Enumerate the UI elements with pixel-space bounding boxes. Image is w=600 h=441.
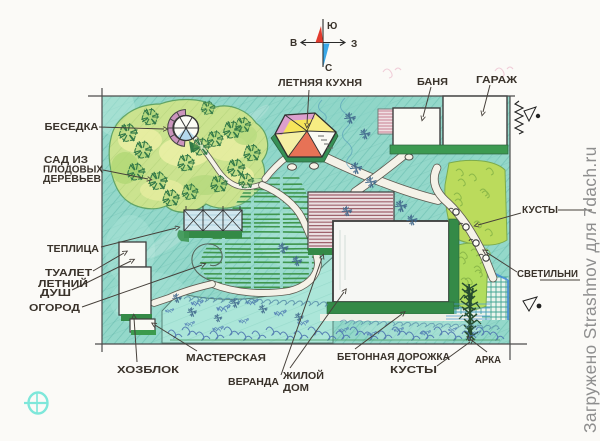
svg-text:В: В — [290, 38, 297, 49]
svg-text:ХОЗБЛОК: ХОЗБЛОК — [117, 365, 180, 376]
svg-text:ДУШ: ДУШ — [40, 288, 71, 299]
svg-text:ДЕРЕВЬЕВ: ДЕРЕВЬЕВ — [43, 174, 101, 185]
svg-text:ОГОРОД: ОГОРОД — [29, 303, 80, 314]
svg-text:С: С — [325, 63, 332, 74]
svg-text:Загружено Strashnov для 7dach.: Загружено Strashnov для 7dach.ru — [580, 146, 600, 433]
svg-text:ВЕРАНДА: ВЕРАНДА — [228, 377, 279, 388]
svg-text:ЖИЛОЙ: ЖИЛОЙ — [282, 369, 324, 382]
svg-text:КУСТЫ: КУСТЫ — [390, 365, 437, 376]
svg-text:ТЕПЛИЦА: ТЕПЛИЦА — [47, 244, 99, 255]
svg-text:БЕТОННАЯ ДОРОЖКА: БЕТОННАЯ ДОРОЖКА — [337, 352, 450, 363]
svg-text:ТУАЛЕТ: ТУАЛЕТ — [45, 268, 92, 279]
svg-text:ДОМ: ДОМ — [283, 383, 309, 394]
svg-text:АРКА: АРКА — [475, 355, 501, 366]
svg-text:СВЕТИЛЬНИ: СВЕТИЛЬНИ — [517, 269, 578, 280]
svg-text:ЛЕТНЯЯ КУХНЯ: ЛЕТНЯЯ КУХНЯ — [278, 78, 362, 89]
svg-text:Ю: Ю — [327, 21, 337, 32]
svg-text:БАНЯ: БАНЯ — [417, 77, 448, 88]
svg-text:ГАРАЖ: ГАРАЖ — [476, 75, 518, 86]
svg-text:КУСТЫ: КУСТЫ — [522, 205, 558, 216]
svg-text:З: З — [351, 39, 357, 50]
svg-text:БЕСЕДКА: БЕСЕДКА — [45, 122, 99, 133]
svg-text:МАСТЕРСКАЯ: МАСТЕРСКАЯ — [186, 353, 266, 364]
